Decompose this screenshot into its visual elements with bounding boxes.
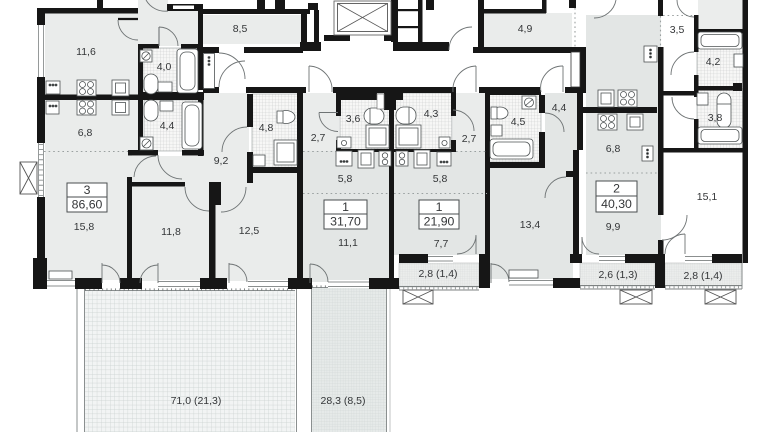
svg-text:2,8 (1,4): 2,8 (1,4): [418, 268, 457, 280]
svg-text:3,6: 3,6: [346, 113, 361, 125]
svg-text:2: 2: [613, 182, 620, 196]
svg-text:4,3: 4,3: [424, 108, 439, 120]
svg-text:2,7: 2,7: [311, 132, 326, 144]
svg-text:9,9: 9,9: [606, 221, 621, 233]
svg-text:1: 1: [436, 200, 443, 214]
svg-text:3,5: 3,5: [670, 24, 685, 36]
svg-text:21,90: 21,90: [424, 215, 455, 229]
svg-text:4,0: 4,0: [157, 61, 172, 73]
svg-text:3: 3: [84, 183, 91, 197]
svg-text:8,5: 8,5: [233, 23, 248, 35]
svg-text:4,8: 4,8: [259, 122, 274, 134]
svg-text:5,8: 5,8: [338, 173, 353, 185]
svg-text:71,0 (21,3): 71,0 (21,3): [171, 395, 222, 407]
svg-text:86,60: 86,60: [72, 198, 103, 212]
svg-text:9,2: 9,2: [214, 155, 229, 167]
svg-text:15,1: 15,1: [697, 191, 718, 203]
svg-text:12,5: 12,5: [239, 225, 260, 237]
svg-text:4,4: 4,4: [552, 102, 567, 114]
svg-text:4,4: 4,4: [160, 120, 175, 132]
svg-text:2,7: 2,7: [462, 133, 477, 145]
svg-text:11,8: 11,8: [161, 226, 181, 238]
svg-text:40,30: 40,30: [601, 197, 632, 211]
svg-text:5,8: 5,8: [433, 173, 448, 185]
svg-text:6,8: 6,8: [606, 143, 621, 155]
svg-text:3,8: 3,8: [708, 112, 723, 124]
svg-text:2,6 (1,3): 2,6 (1,3): [598, 269, 637, 281]
svg-text:4,5: 4,5: [511, 116, 526, 128]
svg-text:11,1: 11,1: [338, 237, 358, 249]
svg-text:28,3 (8,5): 28,3 (8,5): [321, 395, 366, 407]
svg-text:11,6: 11,6: [76, 46, 96, 58]
svg-text:15,8: 15,8: [74, 221, 95, 233]
svg-text:2,8 (1,4): 2,8 (1,4): [683, 270, 722, 282]
svg-text:4,2: 4,2: [706, 56, 721, 68]
svg-text:6,8: 6,8: [78, 127, 93, 139]
svg-text:13,4: 13,4: [520, 219, 541, 231]
svg-text:4,9: 4,9: [518, 23, 533, 35]
svg-text:1: 1: [342, 200, 349, 214]
svg-text:7,7: 7,7: [434, 238, 449, 250]
svg-text:31,70: 31,70: [330, 215, 361, 229]
